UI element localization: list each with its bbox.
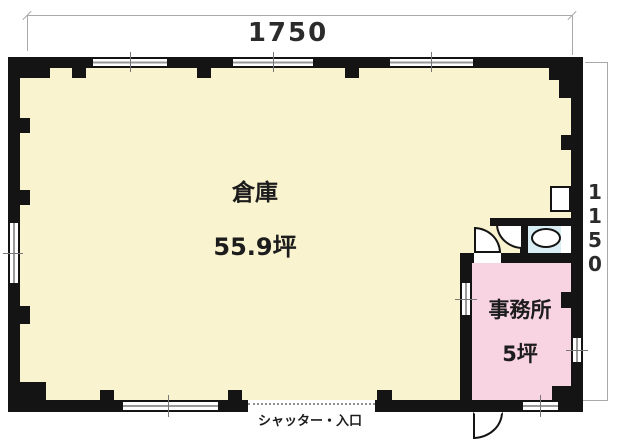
office-name-label: 事務所 [480, 294, 560, 324]
window-tick-icon [130, 52, 131, 72]
wall-pilaster [561, 292, 571, 308]
height-dimension-label: 1150 [583, 180, 607, 270]
warehouse-name-label: 倉庫 [195, 173, 315, 207]
window-tick-icon [168, 395, 169, 417]
warehouse-area-label: 55.9坪 [180, 227, 330, 262]
dimension-line-right [607, 62, 608, 401]
wall-pilaster [345, 68, 359, 78]
office-door-opening [474, 253, 501, 263]
window-tick-icon [540, 395, 541, 417]
wall-pilaster [20, 118, 30, 133]
corner-post [552, 386, 571, 400]
window [123, 400, 218, 412]
width-dimension-label: 1750 [228, 18, 348, 48]
wall-pilaster [20, 190, 30, 205]
corner-post [20, 68, 50, 78]
wall-pilaster [100, 390, 114, 400]
floor-plan: 1750 1150 [0, 0, 623, 441]
wall-pilaster [20, 306, 30, 324]
toilet-bowl-icon [531, 228, 561, 248]
office-wall-left [460, 253, 472, 400]
window-tick-icon [455, 299, 477, 300]
window-tick-icon [273, 52, 274, 72]
dimension-line-right-bottom-end [583, 400, 608, 401]
wall-pilaster [561, 135, 571, 150]
office-room [472, 263, 571, 400]
office-entrance-door-icon [473, 412, 503, 439]
wall-pilaster [377, 390, 392, 400]
corner-post [20, 382, 46, 400]
office-area-label: 5坪 [480, 338, 560, 368]
dimension-line-top-left-end [27, 15, 28, 51]
wall-pilaster [197, 68, 211, 78]
window-tick-icon [431, 52, 432, 72]
dimension-line-top [27, 15, 573, 16]
wall-pilaster [72, 68, 86, 78]
entrance-label: シャッター・入口 [235, 410, 385, 429]
dimension-line-right-top-end [585, 62, 608, 63]
corner-post [559, 80, 571, 98]
dimension-line-top-right-end [572, 15, 573, 55]
toilet-cistern [561, 226, 571, 253]
window-tick-icon [566, 350, 588, 351]
hand-basin-icon [550, 186, 571, 212]
shutter-dotted-line [248, 403, 375, 405]
window-tick-icon [3, 253, 23, 254]
corner-post [549, 68, 571, 80]
wall-pilaster [228, 390, 242, 400]
